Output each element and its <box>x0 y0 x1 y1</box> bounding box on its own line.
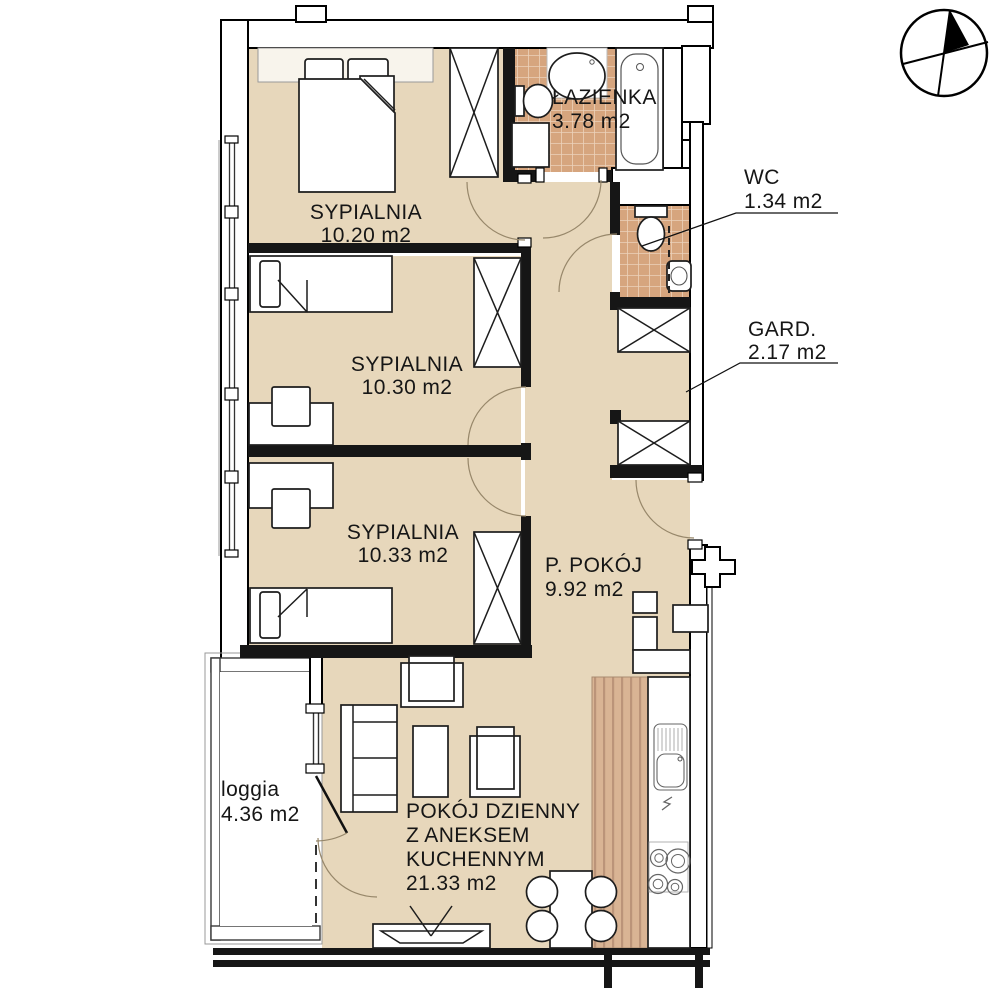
label-sypialnia-2-area: 10.30 m2 <box>362 376 453 399</box>
armchair <box>401 656 463 707</box>
label-ppokoj: P. POKÓJ <box>545 554 642 577</box>
label-wc-area: 1.34 m2 <box>744 190 823 213</box>
duct-shaft-top-right <box>682 46 710 124</box>
wall-bottom-stub-a <box>604 955 612 988</box>
label-wc: WC <box>744 166 780 189</box>
bed1-door-jamb <box>518 174 531 183</box>
label-sypialnia-1: SYPIALNIA <box>310 201 422 224</box>
loggia-wall-bottom <box>211 926 320 940</box>
loggia-wall-top <box>211 658 320 672</box>
kitchen-sink <box>654 724 687 790</box>
duct-box <box>633 650 690 673</box>
floor-plan-page: SYPIALNIA 10.20 m2 SYPIALNIA 10.30 m2 SY… <box>0 0 1000 1000</box>
hallway-floor-upper <box>525 182 612 480</box>
label-living-1: POKÓJ DZIENNY <box>406 800 580 823</box>
label-loggia-area: 4.36 m2 <box>221 803 300 826</box>
dining-table <box>550 871 592 948</box>
label-living-area: 21.33 m2 <box>406 872 497 895</box>
wall-bed2-bed3 <box>248 445 531 457</box>
label-sypialnia-2: SYPIALNIA <box>351 353 463 376</box>
wall-top-bump-right <box>688 6 713 22</box>
bath-door-jamb-b <box>599 168 607 182</box>
sofa <box>341 705 397 812</box>
dining-chair <box>527 877 558 908</box>
duct-box <box>633 617 657 650</box>
pillow <box>260 261 280 307</box>
label-loggia: loggia <box>221 778 279 801</box>
label-living-2: Z ANEKSEM <box>406 824 530 847</box>
label-sypialnia-1-area: 10.20 m2 <box>321 224 412 247</box>
wall-right-upper <box>690 122 703 480</box>
bathtub <box>616 48 663 170</box>
wall-hall-left-a <box>521 253 531 387</box>
duct-box <box>673 605 708 632</box>
balcony-door-jamb-top <box>306 704 324 713</box>
pillow <box>260 592 280 638</box>
wall-wc-left-a <box>610 182 620 235</box>
wall-bottom-band-a <box>213 948 710 955</box>
loggia-wall-left <box>211 658 220 940</box>
label-living-3: KUCHENNYM <box>406 848 545 871</box>
label-sypialnia-3-area: 10.33 m2 <box>358 544 449 567</box>
washing-machine <box>512 123 549 167</box>
toilet <box>524 85 553 118</box>
label-lazienka: ŁAZIENKA <box>552 86 657 109</box>
dining-chair <box>586 911 617 942</box>
label-sypialnia-3: SYPIALNIA <box>347 521 459 544</box>
wall-hall-left-c <box>521 516 531 645</box>
wardrobe-x <box>450 48 498 177</box>
entrance-jamb-b <box>688 540 702 549</box>
floor-plan-drawing: SYPIALNIA 10.20 m2 SYPIALNIA 10.30 m2 SY… <box>0 0 1000 1000</box>
wall-right-outer-line <box>707 587 712 948</box>
toilet-tank <box>635 206 667 217</box>
wardrobe-x <box>474 532 521 644</box>
balcony-door-jamb-mid <box>306 764 324 773</box>
wall-top-bump-left <box>296 6 326 22</box>
wall-top <box>221 20 713 48</box>
dining-chair <box>586 877 617 908</box>
dining-chair <box>527 911 558 942</box>
wardrobe-x <box>618 308 690 352</box>
coffee-table <box>413 726 448 797</box>
wall-bathroom-right <box>663 48 682 172</box>
armchair <box>470 727 520 797</box>
kitchen-counter <box>648 677 690 948</box>
label-gard: GARD. <box>748 318 817 341</box>
wall-bed3-living <box>240 645 532 658</box>
duct-box <box>633 592 657 613</box>
desk-chair <box>272 387 310 426</box>
wall-bottom-stub-b <box>695 955 703 988</box>
kitchen <box>648 677 690 948</box>
wardrobe-x <box>474 258 521 367</box>
label-lazienka-area: 3.78 m2 <box>552 110 631 133</box>
wardrobe-x <box>618 421 690 465</box>
desk-chair <box>272 489 310 528</box>
label-gard-area: 2.17 m2 <box>748 341 827 364</box>
headboard-shelf <box>258 48 433 82</box>
toilet <box>638 217 665 251</box>
compass-rose <box>901 10 988 96</box>
wall-bottom-band-b <box>213 960 710 967</box>
bath-door-jamb-a <box>536 168 544 182</box>
label-ppokoj-area: 9.92 m2 <box>545 578 624 601</box>
entrance-jamb-a <box>688 473 702 482</box>
wall-mass-bath-wc <box>612 168 690 205</box>
